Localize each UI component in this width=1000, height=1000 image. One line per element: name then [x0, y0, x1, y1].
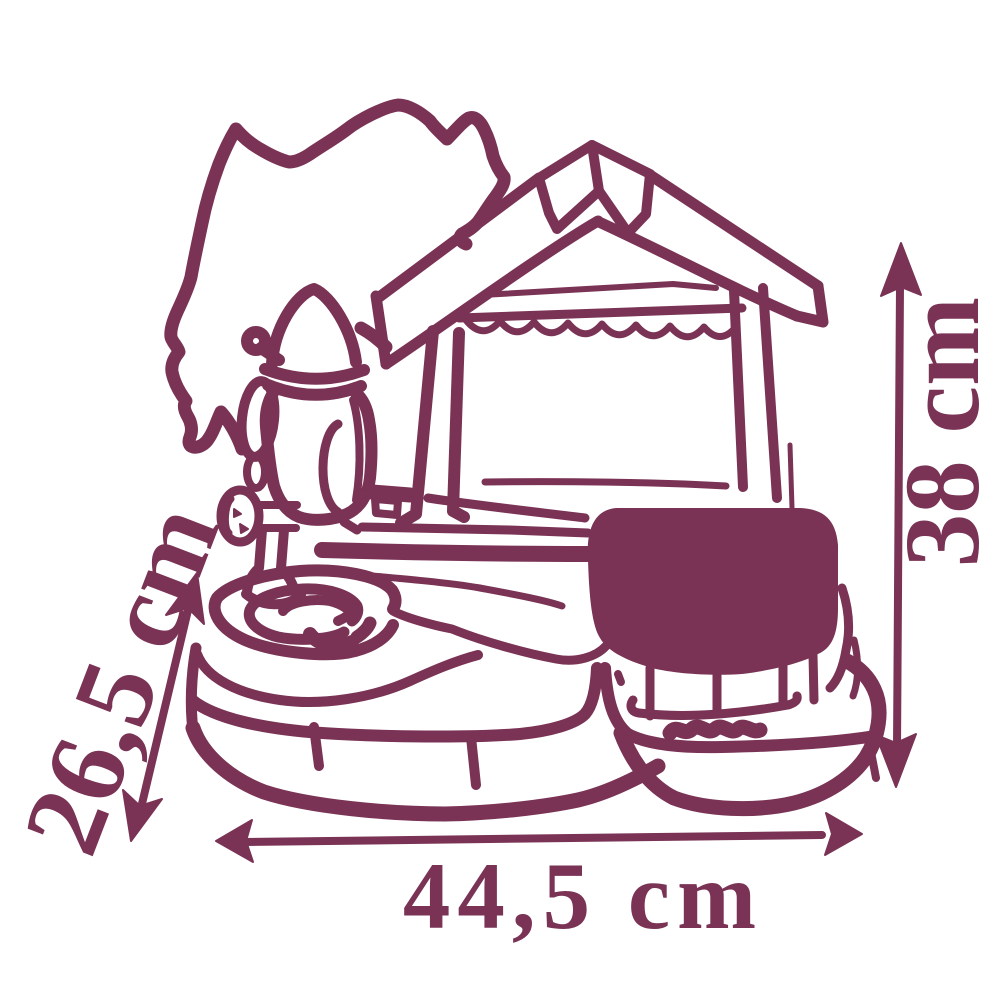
svg-text:26,5 cm: 26,5 cm — [0, 489, 243, 869]
svg-text:38 cm: 38 cm — [884, 297, 1000, 567]
svg-text:44,5 cm: 44,5 cm — [403, 843, 763, 949]
